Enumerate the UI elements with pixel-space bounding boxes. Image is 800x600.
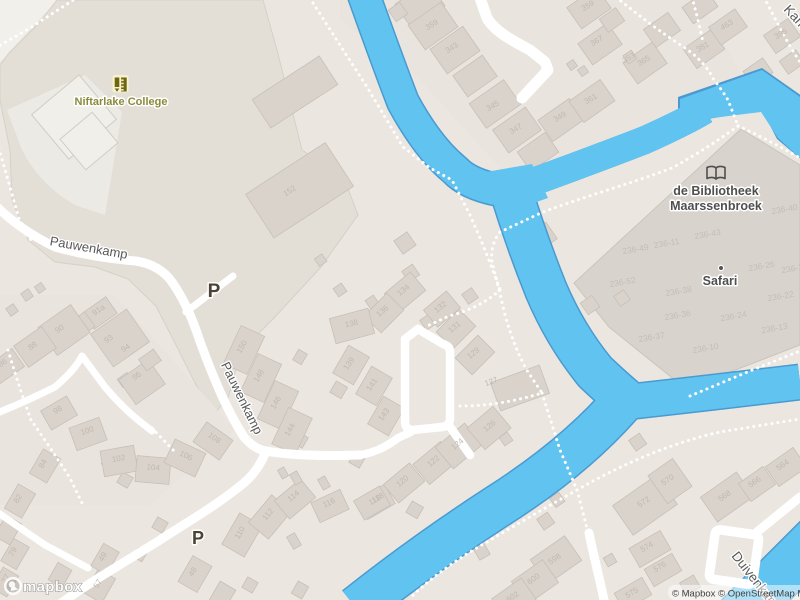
svg-text:© Mapbox © OpenStreetMap Map: © Mapbox © OpenStreetMap Map [672,589,800,600]
svg-text:mapbox: mapbox [23,579,83,596]
svg-text:Niftarlake College: Niftarlake College [75,96,168,108]
svg-text:P: P [208,281,221,302]
svg-text:Safari: Safari [703,274,738,288]
svg-text:P: P [192,528,204,548]
svg-text:Maarssenbroek: Maarssenbroek [670,199,762,213]
svg-text:104: 104 [146,462,161,472]
svg-text:de Bibliotheek: de Bibliotheek [673,184,758,198]
